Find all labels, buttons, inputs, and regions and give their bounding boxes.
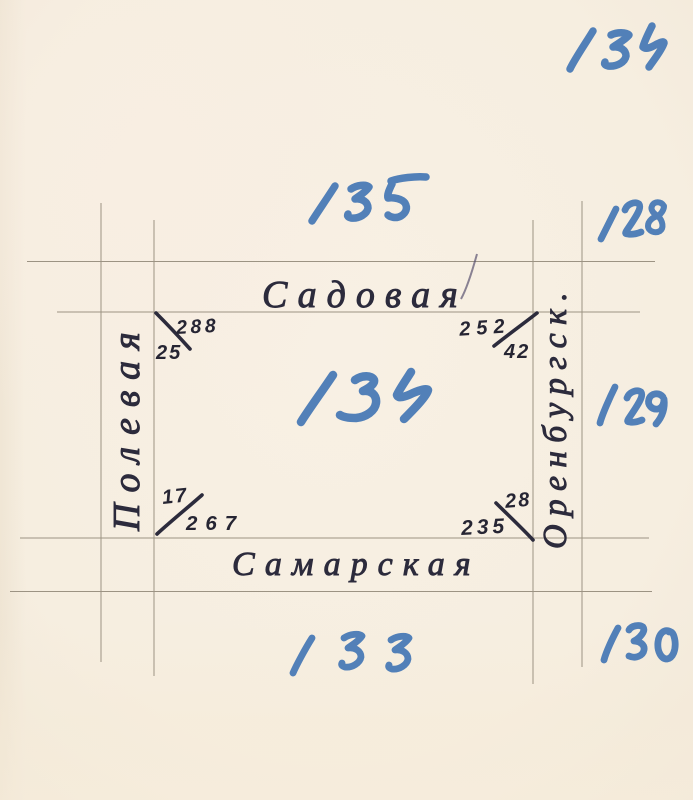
svg-text:267: 267	[185, 512, 244, 535]
svg-text:Оренбургск.: Оренбургск.	[537, 284, 574, 549]
svg-text:Садовая: Садовая	[262, 274, 468, 316]
svg-text:25: 25	[155, 342, 182, 364]
svg-text:42: 42	[503, 341, 530, 363]
svg-text:Полевая: Полевая	[106, 321, 148, 532]
svg-text:17: 17	[161, 484, 189, 509]
svg-text:Самарская: Самарская	[232, 546, 481, 583]
svg-text:288: 288	[175, 315, 220, 339]
svg-text:235: 235	[460, 515, 509, 540]
svg-text:28: 28	[503, 489, 532, 513]
